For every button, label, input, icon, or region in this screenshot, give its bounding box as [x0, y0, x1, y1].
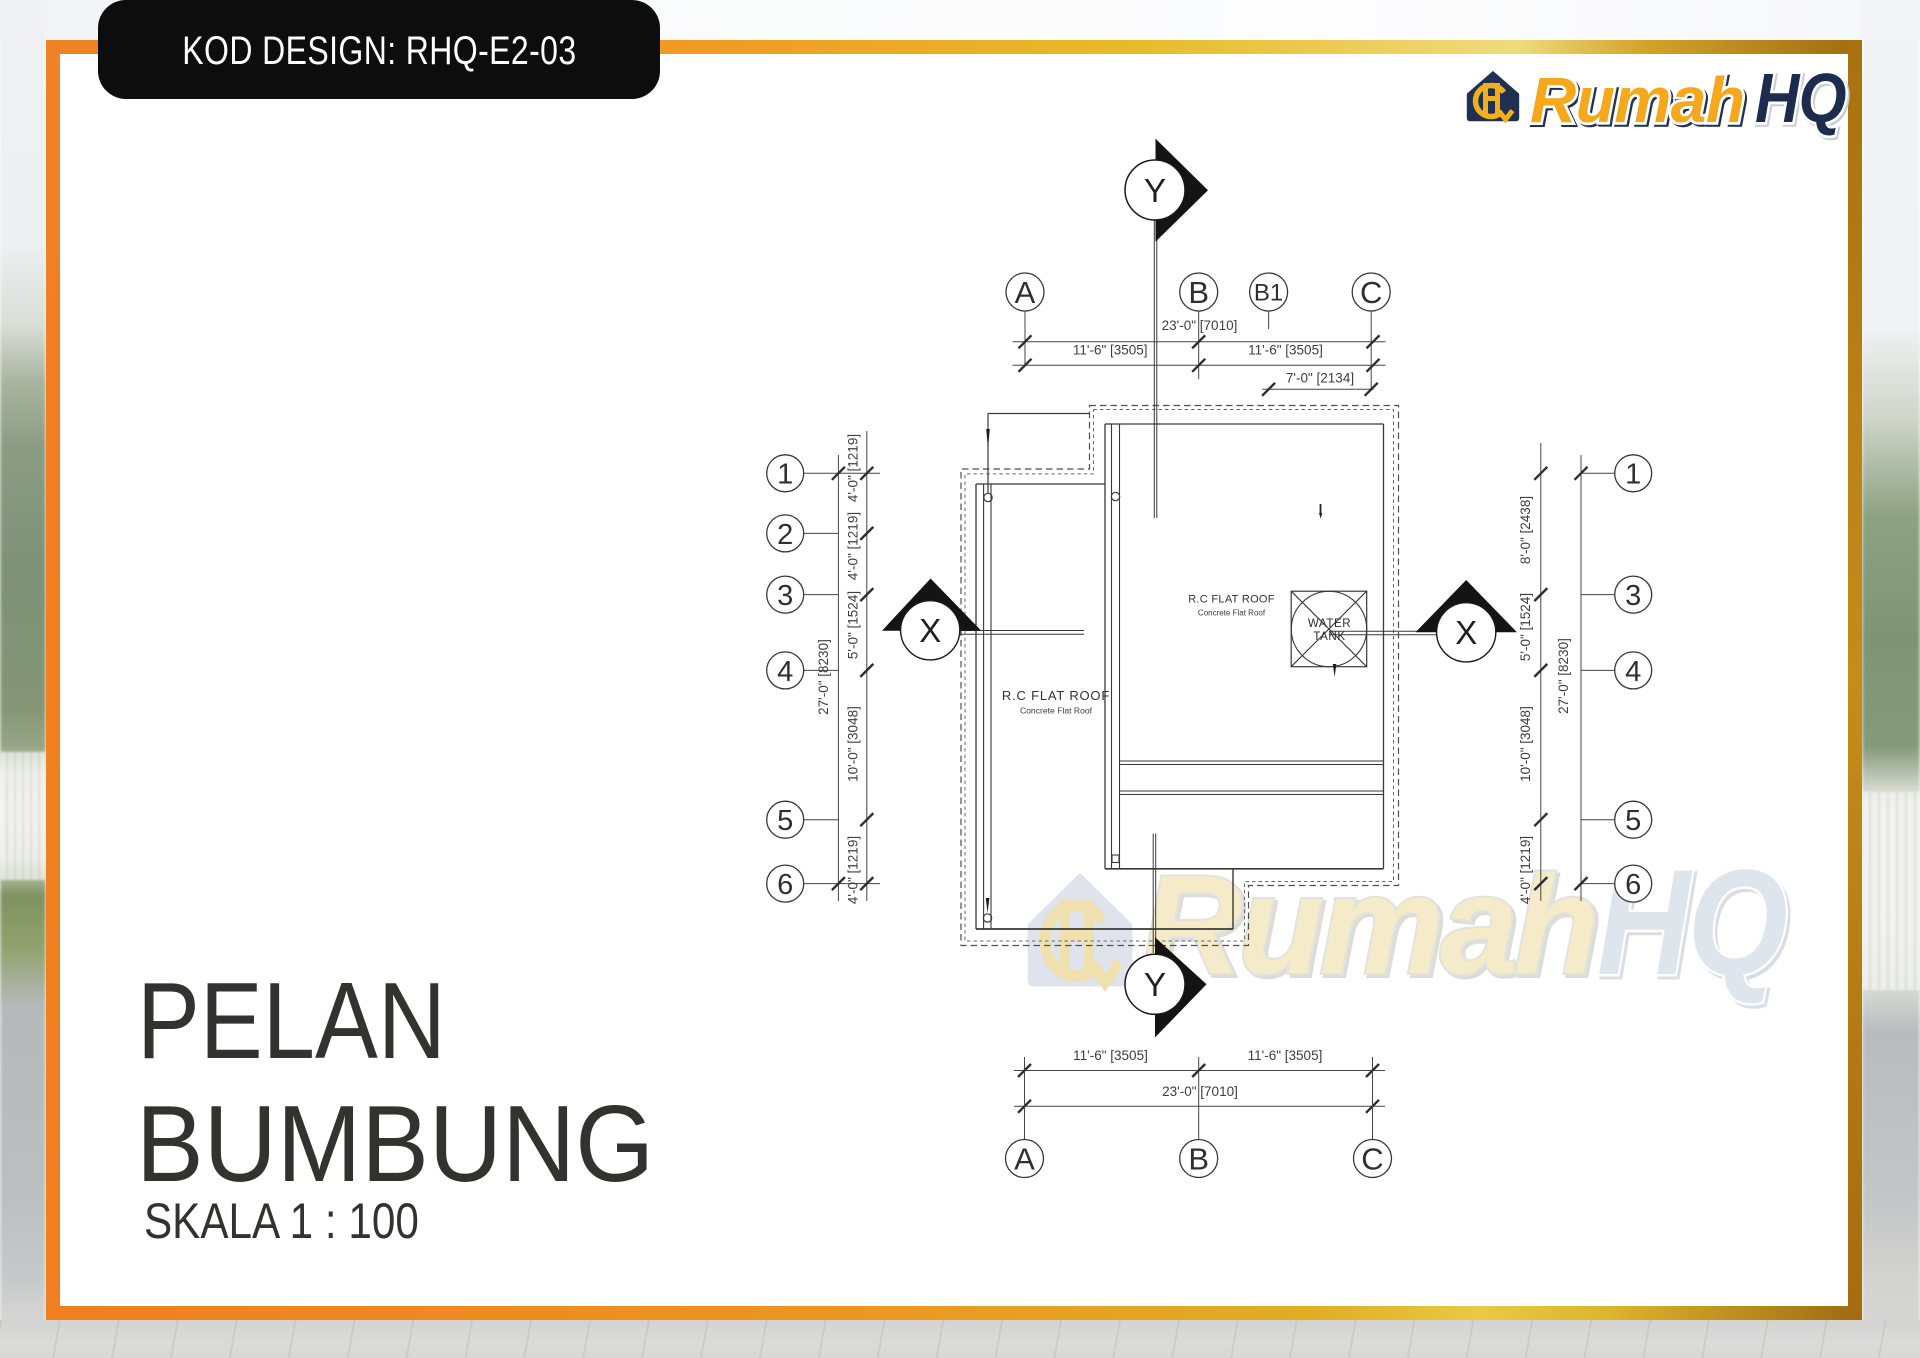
svg-text:5'-0" [1524]: 5'-0" [1524] [1518, 593, 1533, 661]
svg-text:X: X [919, 612, 941, 649]
svg-text:27'-0" [8230]: 27'-0" [8230] [1556, 638, 1571, 714]
svg-text:HQ: HQ [1755, 58, 1846, 137]
svg-text:27'-0" [8230]: 27'-0" [8230] [816, 639, 831, 715]
svg-text:3: 3 [777, 580, 793, 612]
svg-text:R.C FLAT ROOF: R.C FLAT ROOF [1002, 688, 1110, 703]
svg-text:B: B [1188, 275, 1209, 310]
svg-text:4'-0" [1219]: 4'-0" [1219] [845, 434, 860, 502]
svg-text:11'-6" [3505]: 11'-6" [3505] [1248, 343, 1323, 358]
svg-text:23'-0" [7010]: 23'-0" [7010] [1162, 1084, 1238, 1099]
svg-text:11'-6" [3505]: 11'-6" [3505] [1073, 1048, 1148, 1063]
svg-text:Rumah: Rumah [1530, 64, 1744, 136]
svg-text:C: C [1361, 1142, 1383, 1177]
svg-text:TANK: TANK [1313, 631, 1345, 643]
svg-text:23'-0" [7010]: 23'-0" [7010] [1162, 318, 1238, 333]
svg-text:WATER: WATER [1308, 618, 1351, 630]
svg-text:Concrete Flat Roof: Concrete Flat Roof [1198, 609, 1266, 618]
svg-text:4'-0" [1219]: 4'-0" [1219] [845, 836, 860, 904]
svg-text:11'-6" [3505]: 11'-6" [3505] [1073, 343, 1148, 358]
svg-text:8'-0" [2438]: 8'-0" [2438] [1518, 496, 1533, 564]
svg-text:4: 4 [1625, 656, 1641, 688]
svg-text:1: 1 [777, 459, 793, 491]
svg-text:5: 5 [1625, 805, 1641, 837]
svg-text:B: B [1188, 1142, 1209, 1177]
svg-text:Concrete Flat Roof: Concrete Flat Roof [1020, 706, 1093, 716]
svg-text:C: C [1360, 275, 1382, 310]
svg-text:Y: Y [1144, 966, 1166, 1003]
svg-text:4'-0" [1219]: 4'-0" [1219] [1518, 836, 1533, 904]
svg-text:5: 5 [777, 805, 793, 837]
svg-text:X: X [1455, 614, 1477, 651]
svg-text:6: 6 [777, 869, 793, 901]
svg-text:A: A [1015, 275, 1036, 310]
svg-text:5'-0" [1524]: 5'-0" [1524] [845, 591, 860, 659]
svg-text:7'-0" [2134]: 7'-0" [2134] [1286, 371, 1354, 386]
svg-text:4'-0" [1219]: 4'-0" [1219] [845, 512, 860, 580]
svg-text:6: 6 [1625, 869, 1641, 901]
svg-text:R.C FLAT ROOF: R.C FLAT ROOF [1188, 594, 1275, 606]
svg-text:B1: B1 [1254, 280, 1283, 307]
svg-text:1: 1 [1625, 459, 1641, 491]
svg-text:2: 2 [777, 519, 793, 551]
svg-text:10'-0" [3048]: 10'-0" [3048] [845, 706, 860, 782]
svg-text:3: 3 [1625, 580, 1641, 612]
svg-text:A: A [1014, 1142, 1035, 1177]
svg-text:4: 4 [777, 656, 793, 688]
svg-text:Y: Y [1144, 172, 1166, 209]
svg-text:10'-0" [3048]: 10'-0" [3048] [1518, 706, 1533, 782]
svg-text:11'-6" [3505]: 11'-6" [3505] [1248, 1048, 1323, 1063]
